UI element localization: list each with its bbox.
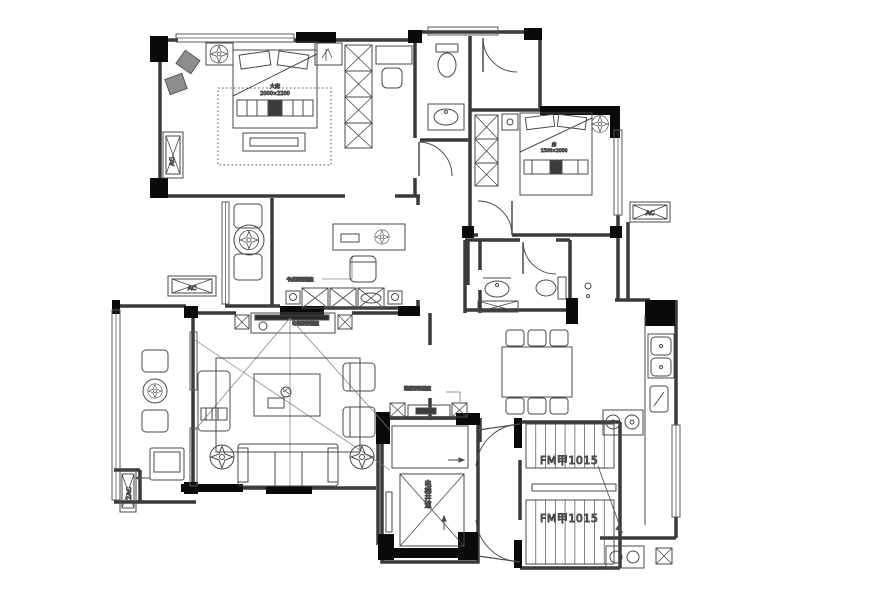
burner: [625, 415, 639, 429]
bedroom-2: 床 1500×2000: [475, 113, 608, 195]
media-device: [259, 322, 267, 330]
floor-plan-canvas: 大床 2000×2200 AC 床: [0, 0, 887, 595]
ac-right: AC: [630, 202, 670, 222]
kitchen: [603, 315, 674, 525]
ac-mid-left: AC: [168, 276, 216, 296]
master-bed-headboard: [233, 42, 317, 50]
master-bed-size: 2000×2200: [260, 91, 290, 97]
cabinet-end: [388, 291, 402, 304]
cabinet-end: [286, 291, 300, 304]
chaise-lounge: [198, 371, 230, 431]
tv-note: 电视预留插座: [292, 320, 319, 327]
ceiling-fan-icon: [210, 45, 228, 63]
desk: [333, 224, 405, 250]
toilet-tank: [436, 44, 458, 52]
master-bed-label: 大床: [270, 83, 280, 90]
ceiling-fan-icon: [592, 116, 609, 133]
plant-icon: [281, 387, 291, 397]
bathroom-top: [428, 44, 464, 130]
decor-pillows-icon: [165, 50, 200, 94]
side-table: [150, 448, 184, 480]
stove: [606, 546, 644, 568]
study: 书桌预留插座: [286, 224, 405, 308]
dining-table: [502, 347, 572, 397]
burner: [627, 551, 639, 563]
wall-lamp-box: [315, 43, 342, 65]
stairwell: FM甲1015 FM甲1015: [526, 424, 622, 564]
fire-door-label: FM甲1015: [540, 454, 598, 467]
ceiling-fan-icon: [148, 384, 162, 398]
windows: [112, 27, 680, 517]
kitchen-sink: [648, 334, 674, 378]
dining-chair: [550, 330, 568, 346]
dining-chair: [506, 398, 524, 414]
sink: [434, 109, 458, 125]
pillow: [525, 114, 554, 129]
balcony-lower: 2AC: [120, 350, 184, 512]
round-table: [234, 225, 264, 255]
pendant-light: [585, 283, 591, 289]
dressing-stool: [382, 68, 402, 88]
bathroom-2: [478, 277, 566, 312]
coffee-table: [254, 374, 320, 416]
stair-rail: [532, 484, 616, 491]
armchair: [142, 410, 168, 432]
ceiling-fan-icon: [239, 230, 258, 249]
nightstand: [502, 114, 518, 130]
floor-plan-drawing: 大床 2000×2200 AC 床: [0, 0, 887, 595]
vanity-counter: [428, 104, 464, 130]
wall-columns: [112, 28, 675, 568]
toilet-tank: [558, 277, 566, 299]
second-bed: [520, 113, 592, 195]
dining-chair: [506, 330, 524, 346]
fire-door-label: FM甲1015: [540, 512, 598, 525]
dining-chair: [528, 398, 546, 414]
ceiling-fan-icon: [375, 230, 389, 244]
desk-chair: [350, 256, 376, 282]
tv-screen: [255, 315, 329, 320]
dressing-table: [376, 46, 412, 64]
dining-chair: [528, 330, 546, 346]
second-bed-label: 床: [552, 141, 557, 148]
adjacent-kitchen: [606, 546, 672, 568]
armchair: [234, 254, 262, 280]
round-table: [143, 379, 167, 403]
master-bedroom: 大床 2000×2200 AC: [163, 42, 412, 178]
ceiling-fan-icon: [210, 445, 234, 469]
elevator-shaft-label: 电梯井道: [424, 479, 432, 509]
accent-chair: [343, 363, 375, 391]
toilet-bowl: [438, 53, 456, 77]
dining-chair: [550, 398, 568, 414]
lounge: [234, 204, 264, 280]
toilet-bowl: [536, 280, 556, 296]
armchair: [234, 204, 262, 228]
foyer-note: 鞋柜预留插座: [404, 385, 431, 392]
study-note: 书桌预留插座: [287, 276, 314, 283]
second-bed-size: 1500×2000: [541, 148, 568, 154]
bed-bench: [243, 133, 305, 151]
living-room: 电视预留插座: [195, 313, 390, 486]
armchair: [142, 350, 168, 372]
sofa: [238, 444, 338, 486]
elevator: 电梯井道: [386, 426, 468, 546]
pillow: [239, 51, 271, 69]
accent-chair: [343, 407, 375, 437]
